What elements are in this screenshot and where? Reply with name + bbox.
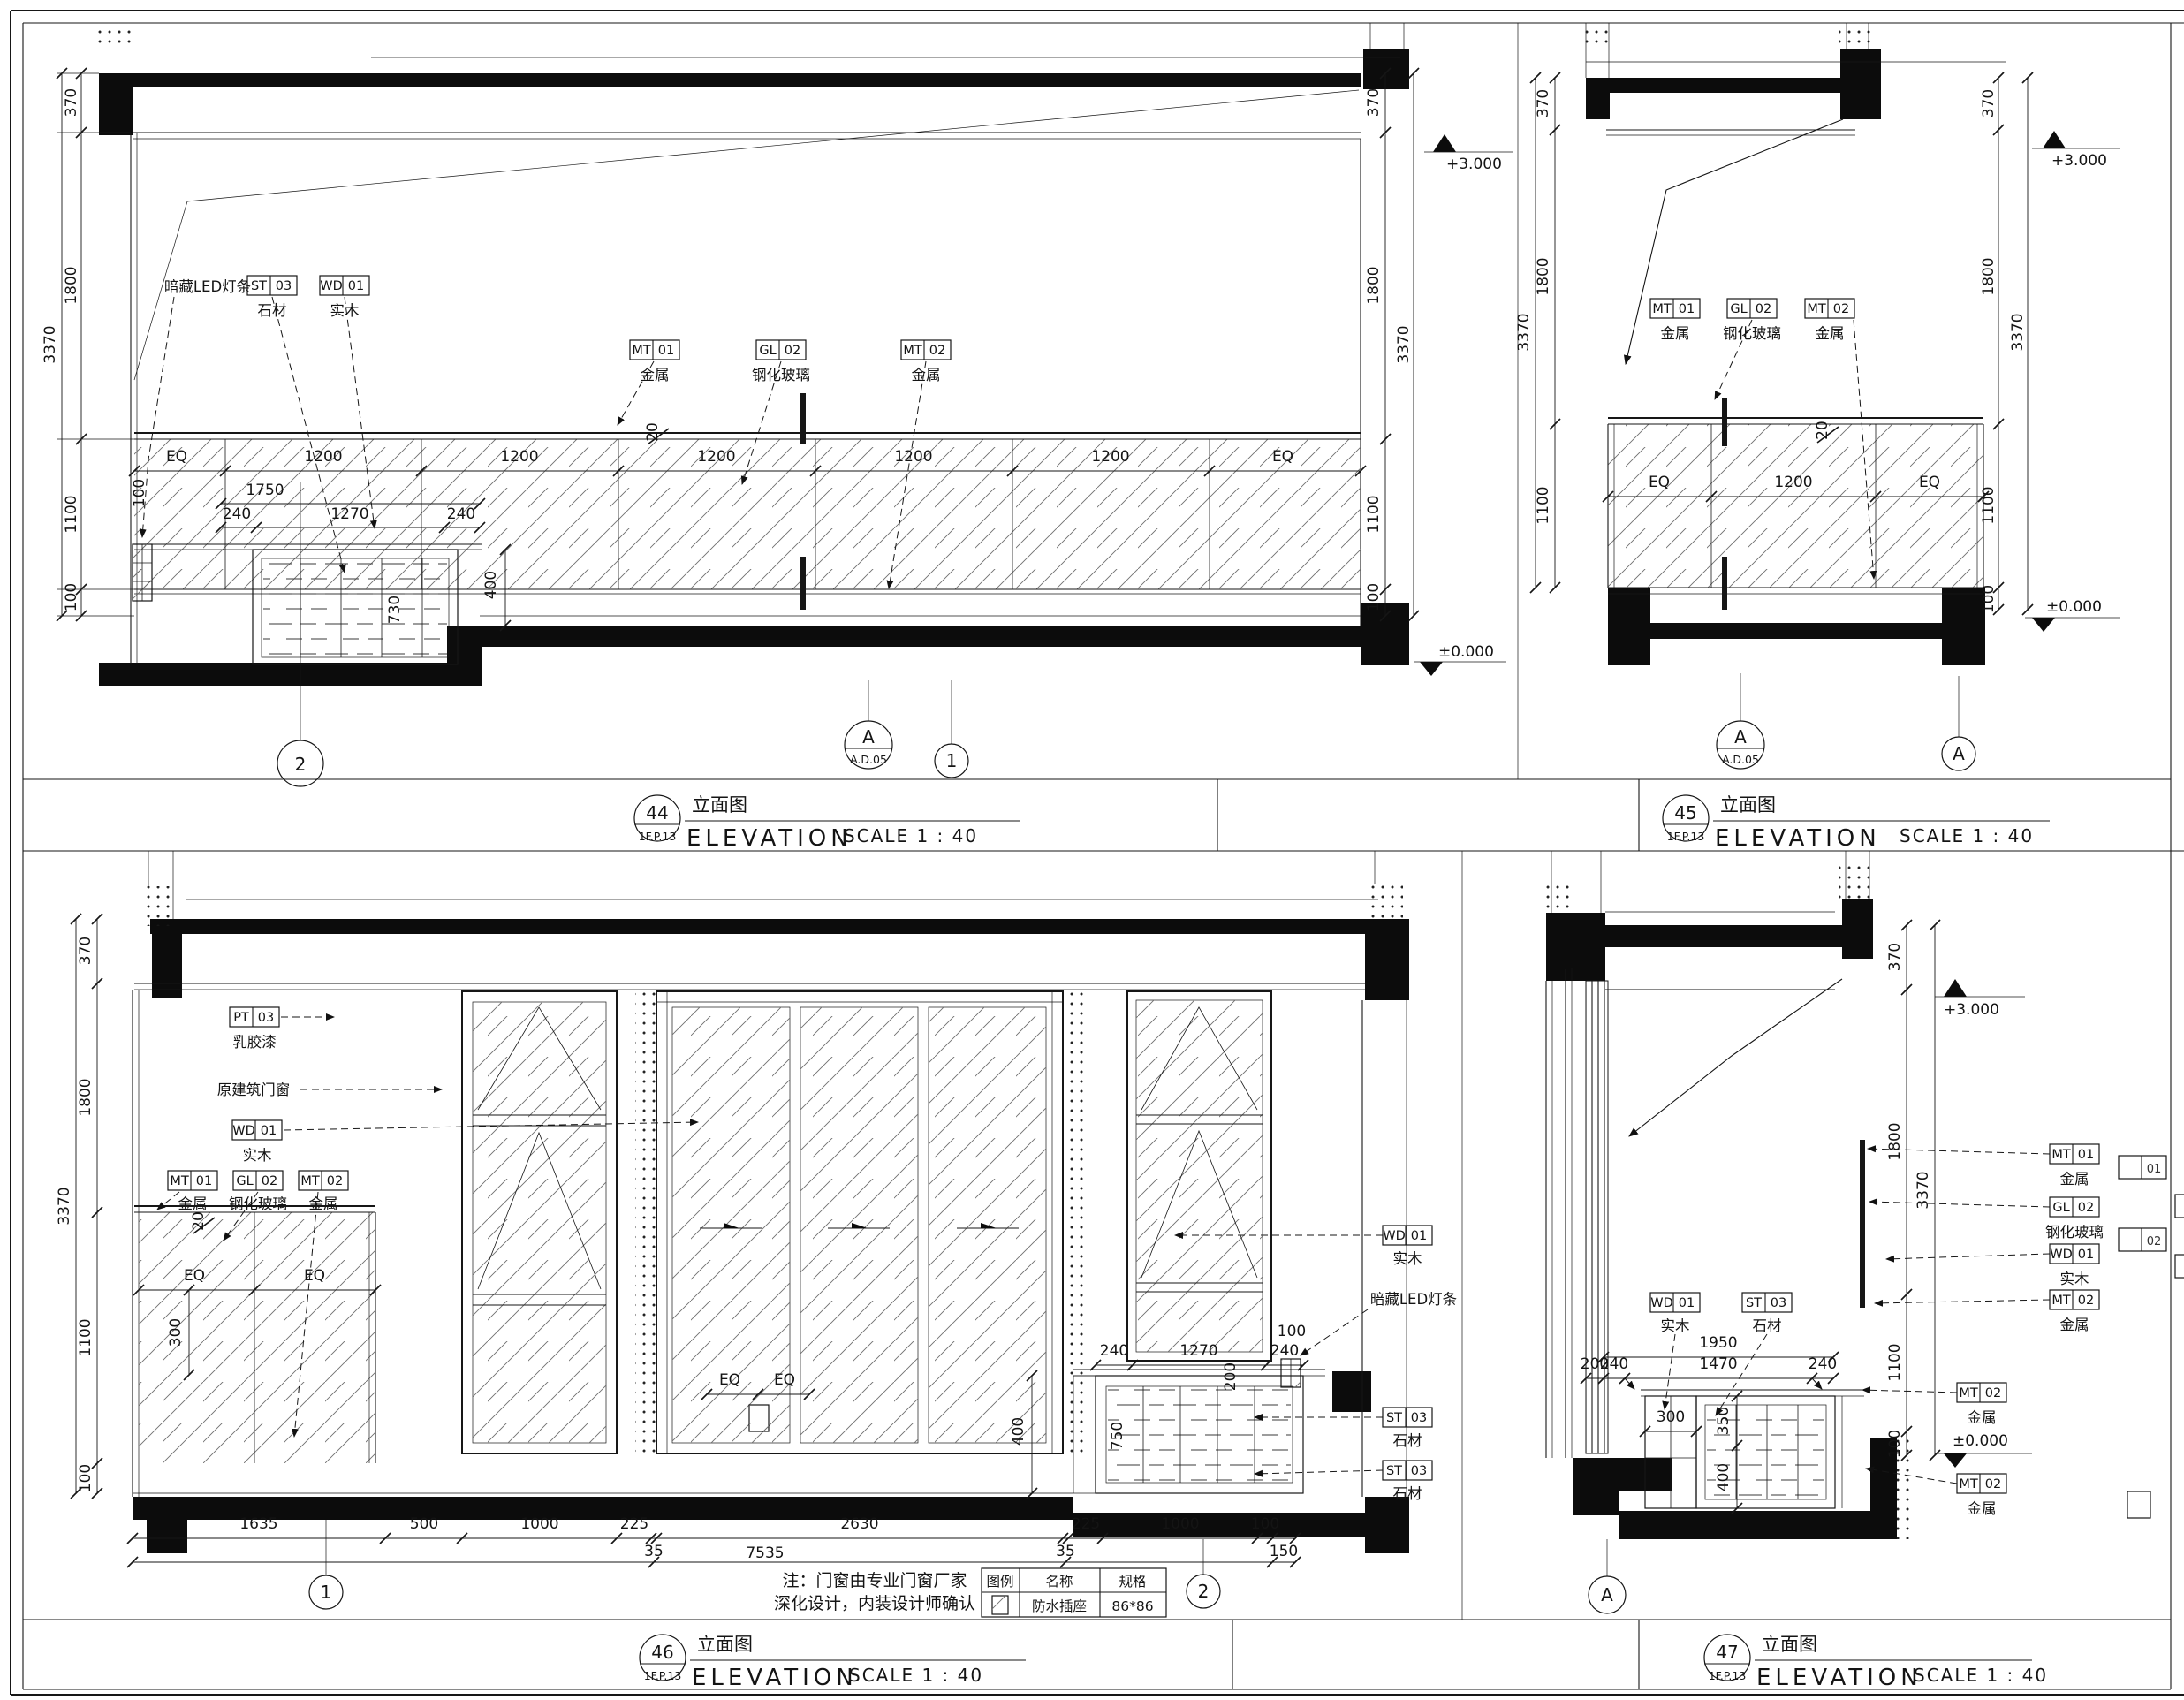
dim-730: 730: [386, 596, 404, 624]
tag-code: ST: [251, 279, 267, 293]
elevation-44: EQ 1200 1200 1200 1200 1200 EQ 20 100 17…: [42, 23, 1513, 786]
level-marker-zero-44: ±0.000: [1414, 643, 1506, 676]
tag-code: ST: [1386, 1411, 1402, 1425]
dim-1800: 1800: [1365, 266, 1383, 304]
titleblock-44: 44 1F.P.13 立面图 ELEVATION SCALE 1 : 40: [634, 794, 1020, 852]
legend-header-name: 名称: [1045, 1574, 1073, 1590]
axis-number: 1: [321, 1582, 332, 1603]
dim-eq: EQ: [166, 448, 187, 466]
material-tag-wd01: WD 01 实木: [232, 1120, 282, 1164]
detail-letter: A: [1734, 726, 1747, 748]
sheet-number: 44: [646, 802, 668, 823]
material-tag-gl02: GL 02 钢化玻璃: [2045, 1197, 2104, 1241]
axis-number: 2: [295, 754, 307, 775]
title-en: ELEVATION: [686, 825, 853, 852]
elevation-47: 300 350 400 1950 200 240 1470 240 WD 01 …: [1546, 851, 2184, 1613]
tag-label: 乳胶漆: [232, 1034, 277, 1051]
tag-label: 钢化玻璃: [229, 1195, 287, 1212]
legend-row-spec: 86*86: [1111, 1598, 1153, 1614]
tag-label: 金属: [641, 367, 670, 383]
tag-num: 02: [785, 344, 800, 358]
dim-225: 225: [620, 1515, 648, 1533]
dim-1800: 1800: [63, 266, 80, 304]
label-hidden-led: 暗藏LED灯条: [164, 278, 251, 295]
tag-num: 01: [658, 344, 674, 358]
material-tag-st03-right1: ST 03 石材: [1383, 1408, 1432, 1449]
dim-500: 500: [410, 1515, 438, 1533]
dim-350: 350: [1715, 1407, 1733, 1435]
elevation-45: EQ 1200 EQ 20 370 1800 1100 3370 370 180…: [1515, 23, 2120, 770]
tag-num: 01: [348, 279, 364, 293]
dim-370: 370: [1980, 89, 1998, 118]
dim-1635: 1635: [239, 1515, 277, 1533]
dim-300: 300: [167, 1318, 185, 1347]
dim-1200: 1200: [500, 448, 538, 466]
dim-240: 240: [1270, 1342, 1299, 1360]
axis-number: 1: [946, 750, 958, 771]
label-original-window: 原建筑门窗: [217, 1081, 291, 1098]
tag-code: MT: [300, 1174, 320, 1188]
material-tag-wd01-col: WD 01 实木: [2050, 1244, 2099, 1287]
edge-fragment-tags: 01 02: [2119, 1156, 2184, 1518]
dim-400: 400: [482, 571, 500, 599]
level-marker-top-44: +3.000: [1424, 134, 1513, 173]
tag-num: 02: [1756, 302, 1771, 316]
tag-num: 01: [1679, 302, 1695, 316]
tag-num: 01: [1411, 1229, 1427, 1243]
dim-370: 370: [1365, 88, 1383, 117]
tag-code: MT: [1959, 1477, 1978, 1491]
title-scale: SCALE 1 : 40: [844, 825, 978, 846]
dim-2630: 2630: [840, 1515, 878, 1533]
legend-header-symbol: 图例: [986, 1574, 1013, 1590]
detail-bubble-a: A A.D.05: [845, 680, 892, 769]
sheet-number: 47: [1716, 1642, 1738, 1663]
sheet-number: 45: [1674, 802, 1696, 823]
dim-eq: EQ: [184, 1267, 205, 1285]
dim-1470: 1470: [1699, 1355, 1737, 1373]
level-zero: ±0.000: [1438, 643, 1494, 661]
dim-100: 100: [1980, 585, 1998, 613]
material-tag-mt01: MT 01 金属: [630, 340, 679, 383]
tag-label: 金属: [1816, 325, 1845, 342]
dim-1200: 1200: [1091, 448, 1129, 466]
tag-num: 03: [258, 1011, 274, 1025]
tag-label: 金属: [309, 1195, 338, 1212]
dim-370: 370: [1535, 89, 1552, 118]
glass-partition-45: [1608, 398, 1983, 610]
dim-150: 150: [1270, 1543, 1298, 1560]
dim-eq: EQ: [1649, 474, 1670, 491]
tag-label: 金属: [912, 367, 941, 383]
title-cn: 立面图: [692, 794, 747, 816]
tag-code: MT: [903, 344, 922, 358]
dim-240: 240: [1100, 1342, 1128, 1360]
detail-bubble-a: A A.D.05: [1717, 673, 1764, 769]
titleblock-47: 47 1F.P.13 立面图 ELEVATION SCALE 1 : 40: [1704, 1634, 2048, 1691]
dim-1100: 1100: [77, 1318, 95, 1356]
window-1: [462, 991, 617, 1453]
dim-3370: 3370: [1515, 313, 1533, 351]
material-tag-mt02-col: MT 02 金属: [2050, 1290, 2099, 1333]
tag-code: GL: [1730, 302, 1747, 316]
material-tag-mt01: MT 01 金属: [2050, 1144, 2099, 1188]
fragment-01: 01: [2147, 1163, 2162, 1176]
dim-3370: 3370: [42, 325, 59, 363]
dim-eq: EQ: [304, 1267, 325, 1285]
tag-label: 钢化玻璃: [1723, 325, 1781, 342]
material-tag-pt03: PT 03 乳胶漆: [230, 1007, 279, 1051]
dim-200: 200: [1222, 1362, 1240, 1391]
tag-label: 石材: [1393, 1432, 1422, 1449]
tag-code: MT: [1807, 302, 1826, 316]
dim-1750: 1750: [246, 482, 284, 499]
dim-240: 240: [223, 505, 251, 523]
window-2: [1127, 991, 1271, 1361]
axis-letter: A: [1601, 1584, 1613, 1605]
title-cn: 立面图: [1762, 1634, 1817, 1655]
tag-label: 金属: [178, 1195, 208, 1212]
level-marker-top-45: +3.000: [2032, 131, 2120, 170]
elevation-46: EQ EQ 20 300: [56, 851, 1457, 1617]
dim-eq: EQ: [719, 1371, 740, 1389]
tag-label: 钢化玻璃: [752, 367, 810, 383]
dim-370: 370: [1886, 943, 1904, 971]
detail-ref: A.D.05: [1722, 753, 1759, 766]
tag-label: 金属: [1968, 1409, 1997, 1426]
dim-100: 100: [63, 583, 80, 611]
tag-num: 02: [929, 344, 945, 358]
tag-code: MT: [1959, 1386, 1978, 1400]
dim-eq: EQ: [774, 1371, 795, 1389]
dim-1100: 1100: [63, 495, 80, 533]
legend-row-name: 防水插座: [1032, 1598, 1087, 1614]
dim-1100: 1100: [1365, 495, 1383, 533]
dim-1200: 1200: [894, 448, 932, 466]
dim-1270: 1270: [330, 505, 368, 523]
axis-bubble-2: 2: [1187, 1539, 1220, 1608]
dim-100: 100: [1886, 1430, 1904, 1458]
tag-num: 02: [1833, 302, 1849, 316]
dim-1100: 1100: [1535, 486, 1552, 524]
dim-400: 400: [1010, 1417, 1028, 1446]
socket-symbol-46b: [749, 1405, 769, 1431]
dim-100: 100: [1365, 583, 1383, 611]
dim-100: 100: [1278, 1323, 1306, 1340]
dim-370: 370: [77, 937, 95, 965]
material-tag-wd01-right: WD 01 实木: [1383, 1226, 1432, 1267]
level-marker-top-47: +3.000: [1935, 979, 2025, 1019]
tag-label: 实木: [2060, 1271, 2089, 1287]
material-tag-mt02: MT 02 金属: [1805, 299, 1854, 342]
level-top: +3.000: [1944, 1001, 1999, 1019]
axis-letter: A: [1953, 743, 1965, 764]
legend-table: 图例 名称 规格 防水插座 86*86: [982, 1568, 1166, 1617]
dim-3370: 3370: [56, 1187, 73, 1225]
tag-num: 01: [2078, 1148, 2094, 1162]
tag-num: 01: [196, 1174, 212, 1188]
dim-1800: 1800: [1980, 257, 1998, 295]
dim-eq: EQ: [1272, 448, 1293, 466]
dim-1200: 1200: [1774, 474, 1812, 491]
note-line1: 注：门窗由专业门窗厂家: [782, 1571, 967, 1590]
dim-1800: 1800: [77, 1078, 95, 1116]
tag-label: 实木: [1393, 1250, 1422, 1267]
tag-label: 石材: [258, 302, 287, 319]
dim-3370: 3370: [1395, 325, 1413, 363]
detail-letter: A: [862, 726, 875, 748]
tag-code: ST: [1746, 1296, 1762, 1310]
sliding-door: [656, 991, 1063, 1453]
tag-num: 03: [1411, 1464, 1427, 1478]
cad-sheet: EQ 1200 1200 1200 1200 1200 EQ 20 100 17…: [0, 0, 2184, 1700]
tag-num: 02: [2078, 1201, 2094, 1215]
tag-code: MT: [2051, 1148, 2071, 1162]
dim-225: 225: [1072, 1515, 1100, 1533]
sheet-ref: 1F.P.13: [1667, 830, 1705, 843]
socket-symbol-44: [133, 544, 152, 601]
dim-100: 100: [1251, 1515, 1279, 1533]
level-top: +3.000: [2051, 152, 2107, 170]
dim-1000: 1000: [520, 1515, 558, 1533]
material-tag-mt01: MT 01 金属: [1650, 299, 1700, 342]
note-line2: 深化设计，内装设计师确认: [774, 1594, 975, 1613]
tag-code: ST: [1386, 1464, 1402, 1478]
tag-code: MT: [1652, 302, 1672, 316]
dim-240: 240: [447, 505, 475, 523]
dim-35: 35: [1056, 1543, 1075, 1560]
dim-1800: 1800: [1886, 1122, 1904, 1160]
dim-20: 20: [1814, 421, 1831, 440]
sheet-ref: 1F.P.13: [644, 1669, 682, 1682]
dim-1100: 1100: [1886, 1343, 1904, 1381]
tag-code: WD: [2050, 1248, 2073, 1262]
tag-num: 01: [261, 1124, 277, 1138]
level-zero: ±0.000: [1953, 1432, 2008, 1450]
tag-label: 实木: [243, 1147, 272, 1164]
tag-code: MT: [2051, 1294, 2071, 1308]
dim-20: 20: [190, 1211, 208, 1231]
sheet-ref: 1F.P.13: [639, 830, 677, 843]
title-scale: SCALE 1 : 40: [1900, 825, 2034, 846]
tag-label: 金属: [2060, 1171, 2089, 1188]
dim-400: 400: [1715, 1463, 1733, 1491]
tag-code: GL: [236, 1174, 253, 1188]
tag-num: 03: [1771, 1296, 1786, 1310]
tag-label: 钢化玻璃: [2045, 1224, 2104, 1241]
material-tag-st03: ST 03 石材: [1742, 1293, 1792, 1334]
material-tag-mt02-tub2: MT 02 金属: [1957, 1474, 2006, 1517]
title-cn: 立面图: [697, 1634, 753, 1655]
tag-num: 01: [1679, 1296, 1695, 1310]
dim-1950: 1950: [1699, 1334, 1737, 1352]
tag-label: 金属: [1968, 1500, 1997, 1517]
level-marker-zero-45: ±0.000: [2025, 598, 2120, 632]
tag-label: 石材: [1393, 1485, 1422, 1502]
tag-num: 02: [327, 1174, 343, 1188]
dim-1200: 1200: [304, 448, 342, 466]
tag-num: 02: [1985, 1477, 2001, 1491]
dim-1270: 1270: [1179, 1342, 1217, 1360]
tag-label: 石材: [1753, 1317, 1782, 1334]
dim-370: 370: [63, 88, 80, 117]
tag-code: PT: [233, 1011, 249, 1025]
axis-bubble-a: A: [1589, 1539, 1626, 1613]
socket-symbol-46: [1281, 1359, 1301, 1387]
material-tag-gl02: GL 02 钢化玻璃: [229, 1171, 287, 1212]
title-scale: SCALE 1 : 40: [849, 1665, 983, 1686]
tag-num: 03: [1411, 1411, 1427, 1425]
dim-240: 240: [1600, 1355, 1628, 1373]
fragment-02: 02: [2147, 1235, 2162, 1248]
dim-35: 35: [644, 1543, 664, 1560]
dim-300: 300: [1657, 1408, 1685, 1426]
material-tag-st03-right2: ST 03 石材: [1383, 1461, 1432, 1502]
tag-num: 03: [276, 279, 292, 293]
dim-20: 20: [644, 422, 662, 442]
title-en: ELEVATION: [1715, 825, 1881, 852]
dim-3370: 3370: [2009, 313, 2027, 351]
dim-750: 750: [1109, 1422, 1126, 1450]
sheet-ref: 1F.P.13: [1709, 1669, 1747, 1682]
tag-num: 02: [2078, 1294, 2094, 1308]
titleblock-45: 45 1F.P.13 立面图 ELEVATION SCALE 1 : 40: [1663, 794, 2050, 852]
label-hidden-led: 暗藏LED灯条: [1370, 1291, 1457, 1308]
level-zero: ±0.000: [2046, 598, 2102, 616]
legend-socket-icon: [992, 1596, 1008, 1614]
axis-number: 2: [1198, 1581, 1210, 1602]
level-top: +3.000: [1446, 156, 1502, 173]
level-marker-zero-47: ±0.000: [1937, 1432, 2032, 1468]
tag-code: GL: [2052, 1201, 2069, 1215]
title-en: ELEVATION: [692, 1665, 858, 1691]
tag-code: WD: [232, 1124, 255, 1138]
material-tag-wd01: WD 01 实木: [1650, 1293, 1700, 1334]
tag-num: 02: [262, 1174, 277, 1188]
tag-label: 实木: [1661, 1317, 1690, 1334]
elevation-drawing-sheet: EQ 1200 1200 1200 1200 1200 EQ 20 100 17…: [0, 0, 2184, 1700]
tag-label: 金属: [2060, 1317, 2089, 1333]
tag-code: WD: [320, 279, 343, 293]
dim-7535: 7535: [746, 1544, 784, 1562]
title-scale: SCALE 1 : 40: [1914, 1665, 2048, 1686]
tag-num: 01: [2078, 1248, 2094, 1262]
dim-1000: 1000: [1161, 1515, 1199, 1533]
sheet-number: 46: [651, 1642, 673, 1663]
axis-bubble-a: A: [1942, 676, 1975, 770]
tag-label: 金属: [1661, 325, 1690, 342]
tag-code: MT: [632, 344, 651, 358]
tag-code: MT: [170, 1174, 189, 1188]
tag-code: GL: [759, 344, 776, 358]
titleblock-46: 46 1F.P.13 立面图 ELEVATION SCALE 1 : 40: [640, 1634, 1026, 1691]
material-tag-mt02-tub1: MT 02 金属: [1957, 1383, 2006, 1426]
dim-1200: 1200: [697, 448, 735, 466]
axis-bubble-1: 1: [935, 680, 968, 778]
tag-code: WD: [1650, 1296, 1673, 1310]
tag-code: WD: [1383, 1229, 1406, 1243]
dim-eq: EQ: [1919, 474, 1940, 491]
detail-ref: A.D.05: [850, 753, 887, 766]
dim-1800: 1800: [1535, 257, 1552, 295]
legend-header-spec: 规格: [1119, 1574, 1147, 1590]
title-cn: 立面图: [1720, 794, 1776, 816]
title-en: ELEVATION: [1756, 1665, 1922, 1691]
tag-num: 02: [1985, 1386, 2001, 1400]
axis-bubble-1: 1: [309, 1520, 343, 1609]
tag-label: 实木: [330, 302, 360, 319]
